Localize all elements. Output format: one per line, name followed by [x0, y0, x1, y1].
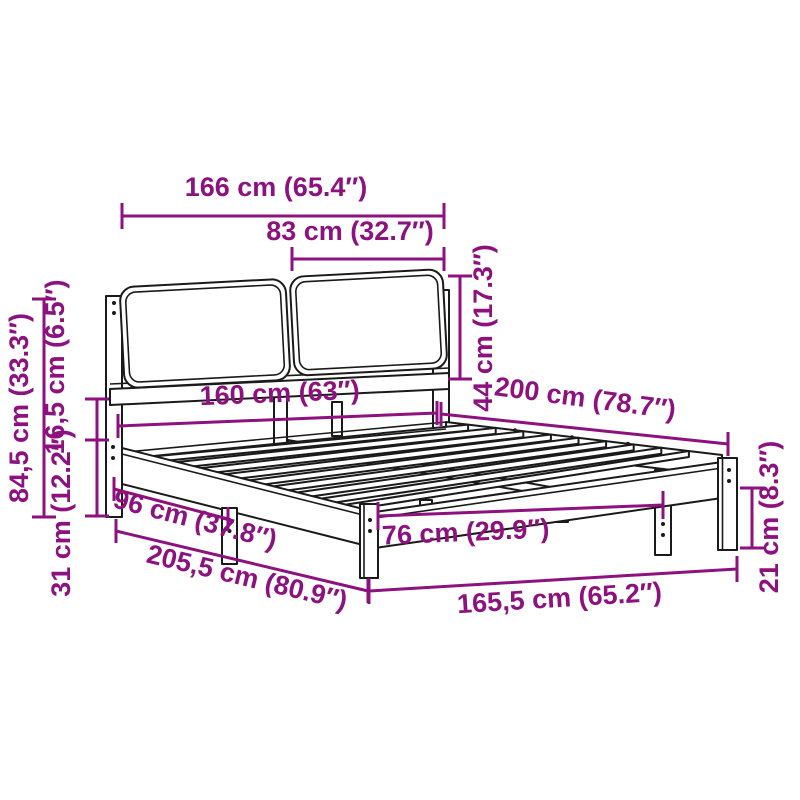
dim-headboard-panel-width: 83 cm (32.7″): [266, 216, 444, 271]
foot-right-leg: [718, 458, 737, 550]
headboard-panel-right: [290, 269, 448, 376]
headboard-batten: [332, 402, 342, 436]
foot-left-leg: [360, 504, 378, 578]
dim-rail-and-clearance: 16,5 cm (6.5″) 31 cm (12.2″): [40, 279, 109, 596]
dim-headboard-panel-height: 44 cm (17.3″): [448, 244, 498, 412]
dim-frame-rail-height-label: 16,5 cm (6.5″): [40, 279, 70, 454]
dim-foot-leg-height-label: 21 cm (8.3″): [754, 441, 784, 594]
dim-total-width-at-foot: 165,5 cm (65.2″): [369, 556, 737, 619]
dim-mattress-width-label: 160 cm (63″): [199, 375, 360, 411]
dim-foot-leg-height: 21 cm (8.3″): [740, 441, 784, 594]
dim-total-length-label: 205,5 cm (80.9″): [144, 539, 350, 616]
dim-headboard-total-height-label: 84,5 cm (33.3″): [4, 313, 34, 503]
headboard-panel-left: [119, 279, 290, 389]
dim-headboard-panel-width-label: 83 cm (32.7″): [266, 216, 434, 246]
dim-mattress-length-label: 200 cm (78.7″): [493, 371, 678, 425]
dimension-diagram: 166 cm (65.4″) 83 cm (32.7″) 44 cm (17.3…: [0, 0, 800, 800]
dim-headboard-panel-height-label: 44 cm (17.3″): [468, 244, 498, 412]
dim-headboard-outer-width-label: 166 cm (65.4″): [185, 172, 368, 202]
dim-under-bed-clearance-label: 31 cm (12.2″): [46, 429, 76, 597]
dim-center-leg-spacing-label: 76 cm (29.9″): [381, 513, 550, 550]
